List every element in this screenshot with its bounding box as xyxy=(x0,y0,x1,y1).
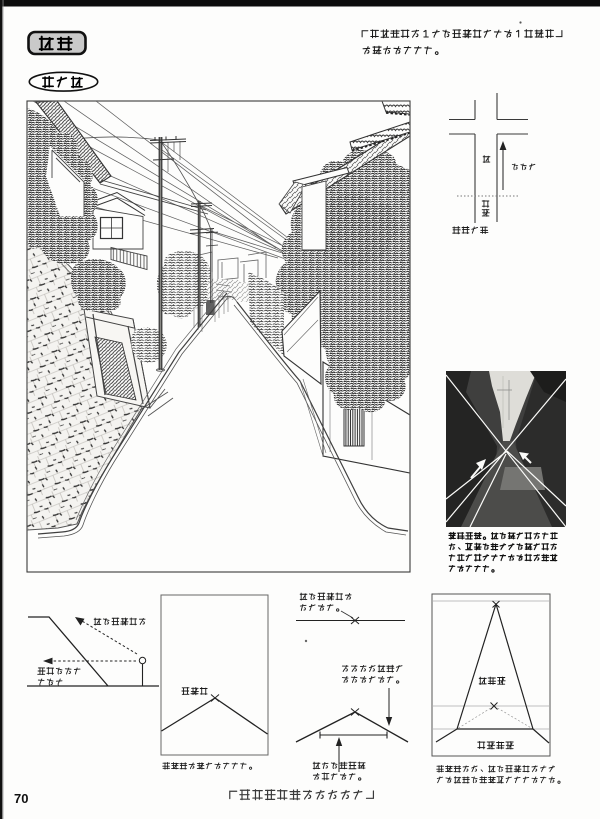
svg-text:70: 70 xyxy=(14,791,28,806)
